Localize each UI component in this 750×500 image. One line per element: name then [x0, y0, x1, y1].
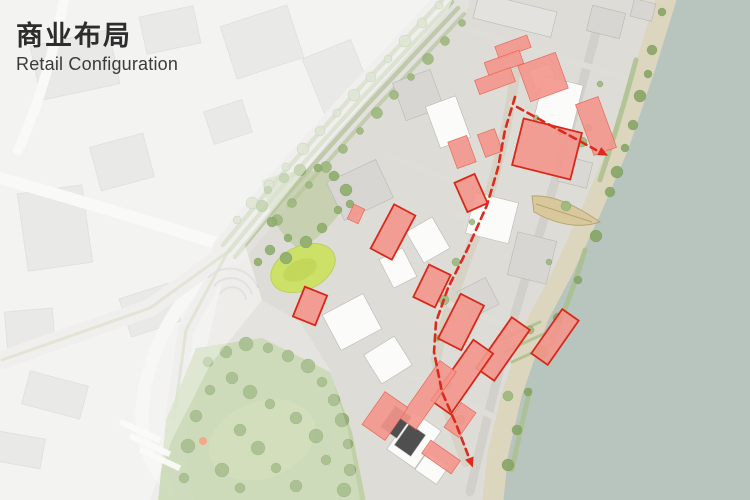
tree: [329, 171, 339, 181]
tree: [265, 245, 275, 255]
tree: [317, 223, 327, 233]
tree: [372, 108, 383, 119]
tree: [306, 182, 313, 189]
tree: [597, 81, 603, 87]
tree: [267, 217, 277, 227]
tree: [284, 234, 292, 242]
tree: [441, 37, 450, 46]
tree: [647, 45, 657, 55]
tree: [423, 54, 434, 65]
site-plan-map: [0, 0, 750, 500]
tree: [357, 128, 364, 135]
tree: [503, 391, 513, 401]
tree: [408, 74, 415, 81]
tree: [340, 184, 352, 196]
tree: [634, 90, 646, 102]
tree: [644, 70, 652, 78]
tree: [314, 164, 322, 172]
tree: [280, 252, 292, 264]
tree: [452, 258, 460, 266]
tree: [288, 199, 297, 208]
tree: [469, 219, 475, 225]
tree: [512, 425, 522, 435]
tree: [334, 206, 342, 214]
tree: [621, 144, 629, 152]
tree: [524, 388, 532, 396]
retail-configuration-slide: 商业布局 Retail Configuration: [0, 0, 750, 500]
tree: [300, 236, 312, 248]
tree: [502, 459, 514, 471]
tree: [574, 276, 582, 284]
tree: [605, 187, 615, 197]
tree: [590, 230, 602, 242]
tree: [628, 120, 638, 130]
tree: [611, 166, 623, 178]
tree: [546, 259, 552, 265]
tree: [321, 162, 332, 173]
tree: [459, 20, 466, 27]
tree: [390, 91, 399, 100]
tree: [561, 201, 571, 211]
tree: [658, 8, 666, 16]
tree: [254, 258, 262, 266]
tree: [339, 145, 348, 154]
